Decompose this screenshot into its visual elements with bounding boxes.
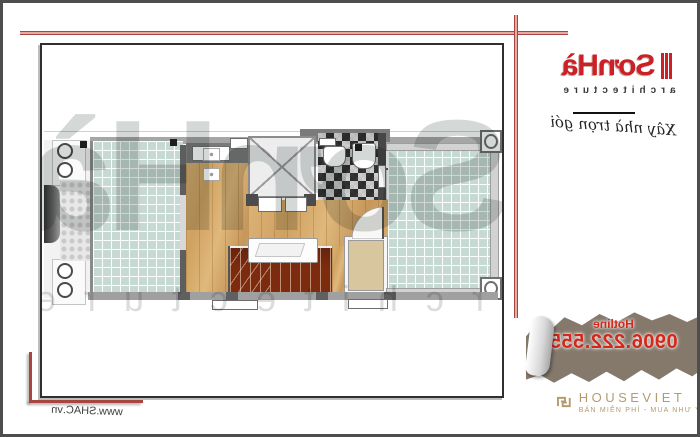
- sonha-logo: SơnHà architecture: [543, 51, 691, 96]
- red-guide-line-horizontal: [20, 31, 568, 35]
- floorplan-sheet: SơnHà architecture SơnHà architecture Xâ…: [0, 0, 700, 437]
- wall-column-chunk: [178, 292, 190, 300]
- bathroom-door-leaf: [378, 165, 386, 188]
- houseviet-logo: HOUSEVIET BÁN MIỄN PHÍ - MUA NHƯ Ý: [555, 387, 700, 417]
- sonha-logo-subtitle: architecture: [543, 85, 691, 96]
- sonha-logo-flag-icon: [660, 53, 672, 79]
- planter-circle: [57, 263, 73, 279]
- elevator-shaft: [248, 136, 316, 198]
- column-circle: [484, 134, 498, 149]
- logo-divider-line: [573, 112, 635, 114]
- kitchen-shelf: [230, 138, 248, 149]
- sonha-logo-text: SơnHà: [563, 51, 656, 81]
- bathroom-right-wall: [378, 133, 386, 165]
- website-url: www.SHAC.vn: [43, 403, 131, 418]
- bathroom-shelf: [319, 138, 336, 146]
- red-guide-line-vertical: [514, 15, 518, 318]
- planter-circle: [57, 143, 73, 159]
- shoe-cabinet: [258, 197, 282, 212]
- threshold-step: [212, 300, 258, 310]
- houseviet-tagline: BÁN MIỄN PHÍ - MUA NHƯ Ý: [579, 407, 700, 414]
- bathroom-right-wall: [378, 188, 386, 200]
- sink-basin: [203, 168, 220, 181]
- column-marker: [170, 139, 177, 146]
- water-tank: [44, 185, 60, 243]
- wall-column-chunk: [316, 292, 328, 300]
- hall-table-top: [255, 243, 306, 257]
- back-terrace-tiles: [93, 141, 183, 295]
- terrace-column: [480, 130, 502, 153]
- red-corner-mark-horizontal: [29, 400, 143, 403]
- houseviet-name: HOUSEVIET: [579, 390, 700, 405]
- bottom-wall: [88, 292, 498, 300]
- elevator-jamb: [246, 194, 258, 206]
- sonha-tagline-handwriting: Xây nhà trọn gói: [531, 111, 696, 140]
- red-corner-mark-vertical: [29, 352, 32, 402]
- column-marker: [355, 144, 362, 151]
- planter-circle: [57, 282, 73, 298]
- planter-circle: [57, 162, 73, 178]
- column-marker: [80, 141, 87, 148]
- wood-floor-sliver: [332, 246, 345, 296]
- stone-path: [60, 181, 92, 261]
- houseviet-mark-icon: [555, 387, 573, 417]
- front-terrace-tiles: [388, 148, 490, 290]
- bathroom-sink: [323, 146, 346, 167]
- threshold-step: [348, 299, 388, 309]
- understair-room: [345, 237, 387, 294]
- shoe-cabinet: [285, 197, 307, 212]
- bathroom-door-swing: [352, 207, 384, 239]
- wall-column-chunk: [226, 292, 238, 300]
- plan-drawing-area: SơnHà architecture: [40, 43, 504, 398]
- hall-table: [248, 238, 318, 263]
- terrace-front-right-wall: [490, 143, 499, 296]
- sink-basin: [203, 148, 220, 161]
- lot-line: [44, 131, 496, 132]
- kitchen-sink: [192, 146, 230, 161]
